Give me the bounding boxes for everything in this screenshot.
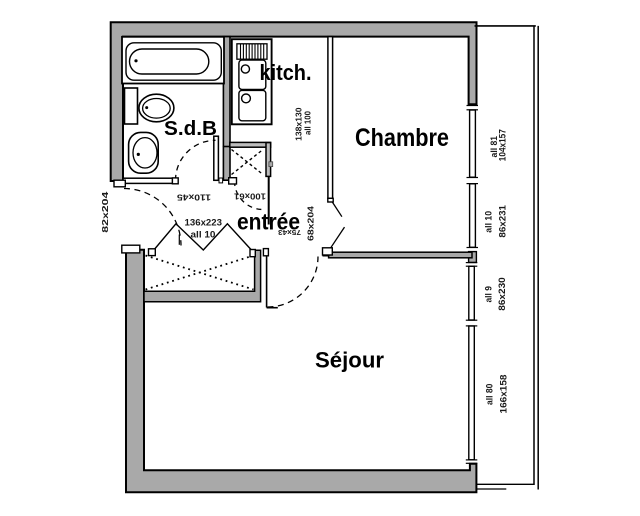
svg-text:Séjour: Séjour [315,348,384,373]
svg-text:104x157: 104x157 [498,129,508,161]
svg-text:all 10: all 10 [191,230,216,240]
svg-text:166x158: 166x158 [498,375,508,414]
svg-text:all 80: all 80 [485,384,495,405]
svg-text:all 81: all 81 [489,136,499,158]
svg-text:138x130: 138x130 [295,107,304,141]
svg-text:75x43: 75x43 [278,228,301,237]
svg-text:68x204: 68x204 [307,205,316,241]
svg-text:all 100: all 100 [304,110,313,135]
svg-text:S.d.B: S.d.B [164,118,217,140]
svg-text:82x204: 82x204 [101,191,110,233]
svg-text:136x223: 136x223 [185,218,223,228]
svg-text:110x45: 110x45 [176,193,211,202]
svg-text:Chambre: Chambre [355,124,449,152]
svg-text:all 9: all 9 [484,286,494,303]
svg-text:all 10: all 10 [484,211,494,233]
svg-text:86x231: 86x231 [497,205,507,238]
svg-text:86x230: 86x230 [497,277,507,311]
svg-text:kitch.: kitch. [260,60,312,85]
svg-text:100x61: 100x61 [233,192,266,201]
